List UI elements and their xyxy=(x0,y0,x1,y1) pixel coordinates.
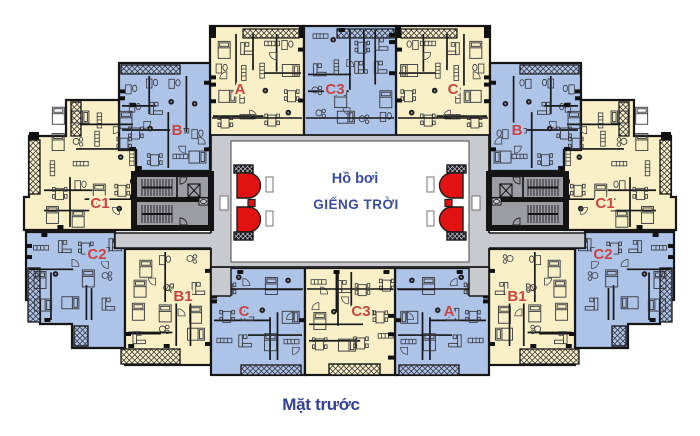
svg-text:B1: B1 xyxy=(507,288,526,305)
svg-text:GIẾNG TRỜI: GIẾNG TRỜI xyxy=(313,197,399,212)
svg-text:C3: C3 xyxy=(351,303,370,320)
svg-text:C2: C2 xyxy=(593,246,612,263)
svg-text:B: B xyxy=(512,122,523,139)
svg-text:C2: C2 xyxy=(87,246,106,263)
svg-text:C1: C1 xyxy=(595,195,614,212)
svg-text:C: C xyxy=(239,303,250,320)
svg-text:Mặt trước: Mặt trước xyxy=(282,395,359,414)
svg-text:C3: C3 xyxy=(325,81,344,98)
svg-text:B: B xyxy=(172,122,183,139)
svg-text:Hồ bơi: Hồ bơi xyxy=(332,171,379,187)
svg-text:B1: B1 xyxy=(173,288,192,305)
svg-text:A: A xyxy=(444,303,455,320)
svg-text:A: A xyxy=(235,81,246,98)
svg-text:C1: C1 xyxy=(90,195,109,212)
svg-text:C: C xyxy=(448,81,459,98)
